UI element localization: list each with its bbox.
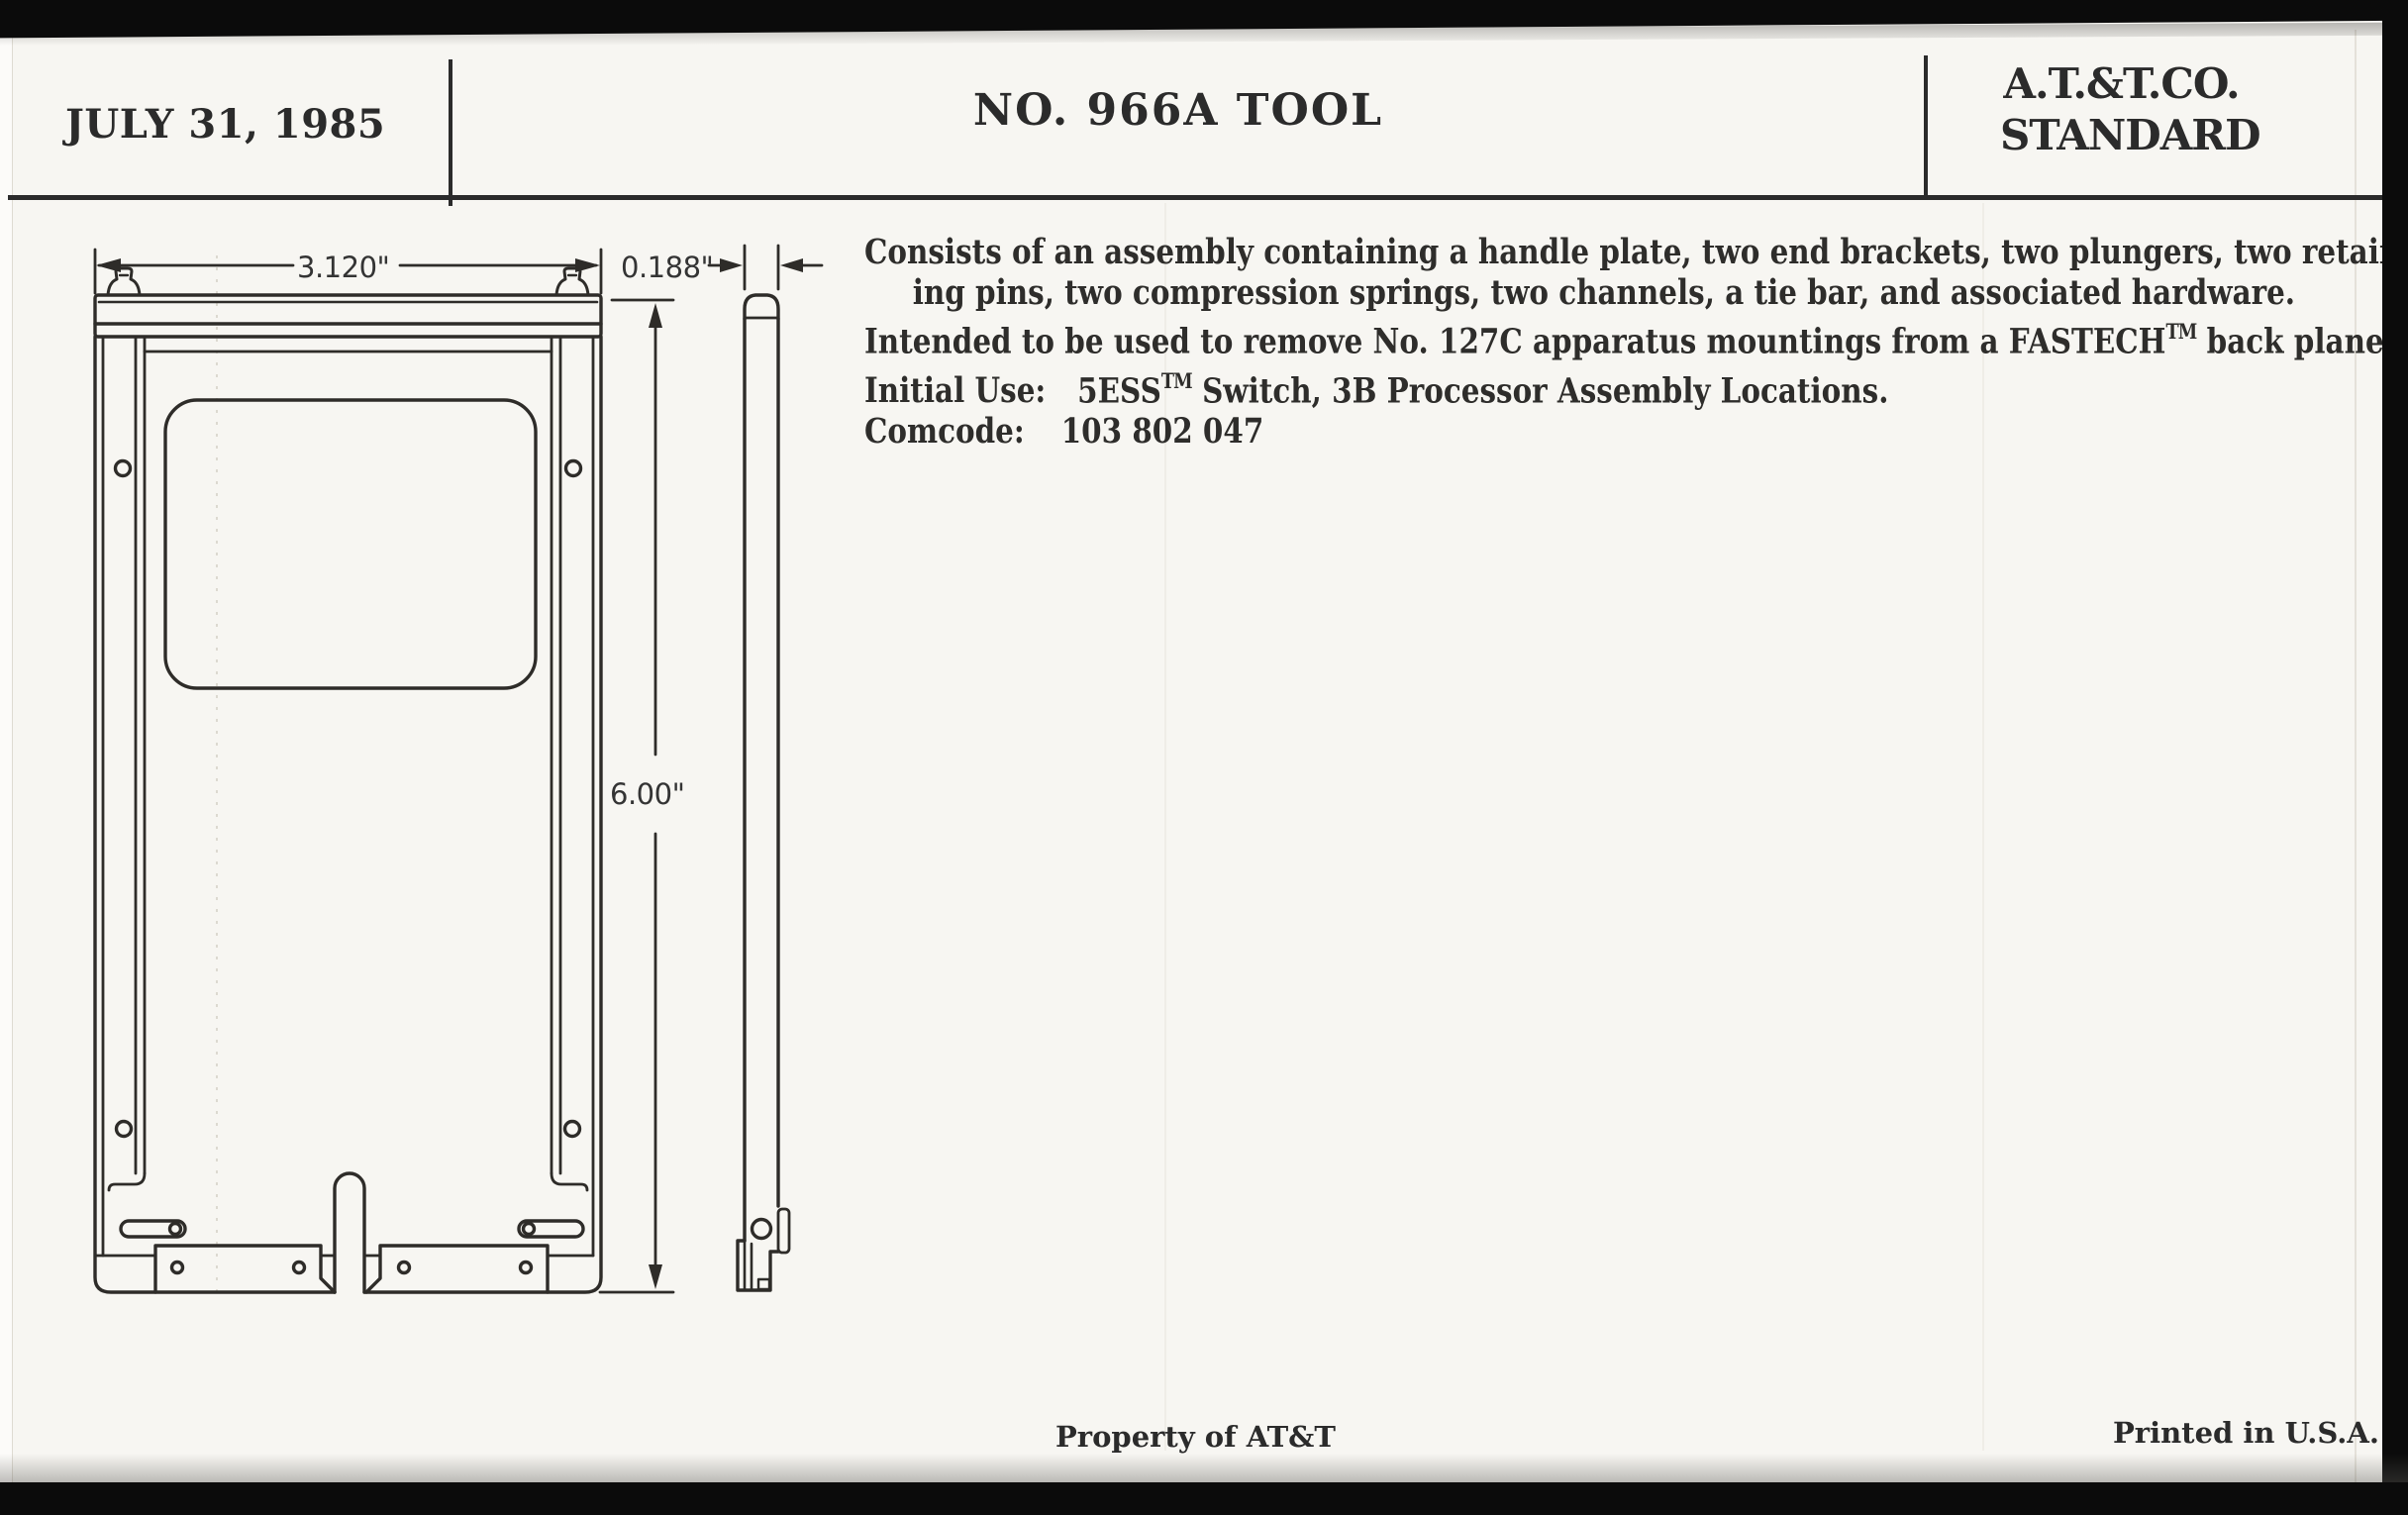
dimension-thickness-label: 0.188" xyxy=(621,251,713,284)
trademark-superscript: TM xyxy=(2165,319,2196,344)
initial-use-label: Initial Use: xyxy=(864,370,1046,411)
printed-note: Printed in U.S.A. xyxy=(2113,1416,2379,1450)
window-cutout xyxy=(165,400,536,688)
front-view xyxy=(95,268,601,1292)
side-view xyxy=(738,295,789,1290)
comcode-line: Comcode:103 802 047 xyxy=(864,411,2408,452)
scanned-standard-sheet: JULY 31, 1985 NO. 966A TOOL A.T.&T.CO. S… xyxy=(0,0,2408,1515)
scan-right-edge xyxy=(2382,0,2408,1515)
dimension-width-label: 3.120" xyxy=(297,251,389,284)
comcode-label: Comcode: xyxy=(864,411,1025,452)
technical-drawing xyxy=(0,0,2408,1515)
comcode-value: 103 802 047 xyxy=(1061,411,1264,452)
description-line-3: Intended to be used to remove No. 127C a… xyxy=(864,313,2408,362)
description-block: Consists of an assembly containing a han… xyxy=(864,232,2408,452)
description-line-1: Consists of an assembly containing a han… xyxy=(864,232,2408,272)
description-line-3-tail: back plane. xyxy=(2196,322,2393,362)
scan-bottom-edge xyxy=(0,1482,2408,1515)
initial-use-value: 5ESS xyxy=(1077,370,1161,411)
initial-use-value-tail: Switch, 3B Processor Assembly Locations. xyxy=(1192,370,1889,411)
dimension-height-label: 6.00" xyxy=(610,777,684,811)
description-line-2: ing pins, two compression springs, two c… xyxy=(864,272,2408,313)
scan-bottom-smudge xyxy=(0,1454,2408,1482)
dimension-arrowheads xyxy=(96,258,803,1289)
initial-use-line: Initial Use:5ESSTM Switch, 3B Processor … xyxy=(864,362,2408,412)
description-line-3-text: Intended to be used to remove No. 127C a… xyxy=(864,322,2165,362)
center-notch xyxy=(335,1173,364,1292)
property-note: Property of AT&T xyxy=(1055,1420,1336,1454)
trademark-superscript: TM xyxy=(1161,368,1192,393)
